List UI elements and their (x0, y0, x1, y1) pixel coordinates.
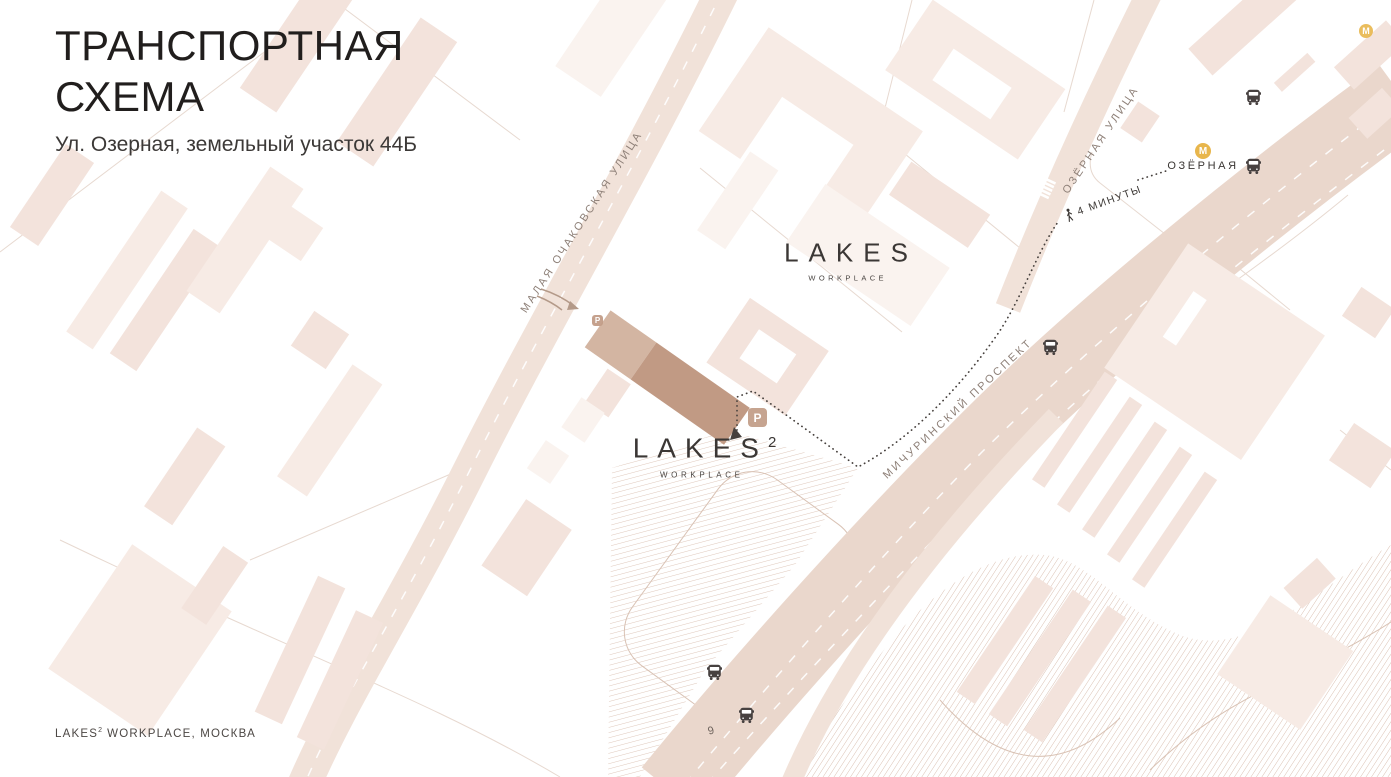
bus-stop-icon (1246, 158, 1261, 174)
metro-station-label: ОЗЁРНАЯ (1167, 160, 1238, 172)
parking-icon: P (592, 315, 603, 326)
page-title-line2: СХЕМА (55, 71, 404, 122)
lakes-logo-name: LAKES (774, 238, 918, 269)
bus-stop-icon (1246, 89, 1261, 105)
footer-brand: LAKES (55, 728, 98, 740)
lakes2-logo: LAKES2 WORKPLACE (624, 433, 777, 480)
bus-stop-icon (739, 707, 754, 723)
page-title: ТРАНСПОРТНАЯ СХЕМА (55, 20, 404, 122)
page-title-line1: ТРАНСПОРТНАЯ (55, 20, 404, 71)
metro-icon: М (1359, 24, 1373, 38)
parking-icon: P (748, 408, 767, 427)
bus-stop-icon (707, 664, 722, 680)
lakes-logo-sub: WORKPLACE (805, 274, 887, 283)
metro-icon: М (1195, 143, 1211, 159)
footer-rest: WORKPLACE, МОСКВА (107, 728, 256, 740)
footer-caption: LAKES2WORKPLACE, МОСКВА (55, 727, 256, 740)
bus-stop-icon (1043, 339, 1058, 355)
transport-scheme-slide: ТРАНСПОРТНАЯ СХЕМА Ул. Озерная, земельны… (0, 0, 1391, 777)
lakes2-logo-sub: WORKPLACE (656, 471, 743, 480)
page-subtitle: Ул. Озерная, земельный участок 44Б (55, 133, 417, 157)
lakes-logo: LAKES WORKPLACE (774, 238, 918, 283)
lakes2-logo-name: LAKES2 (624, 433, 777, 465)
